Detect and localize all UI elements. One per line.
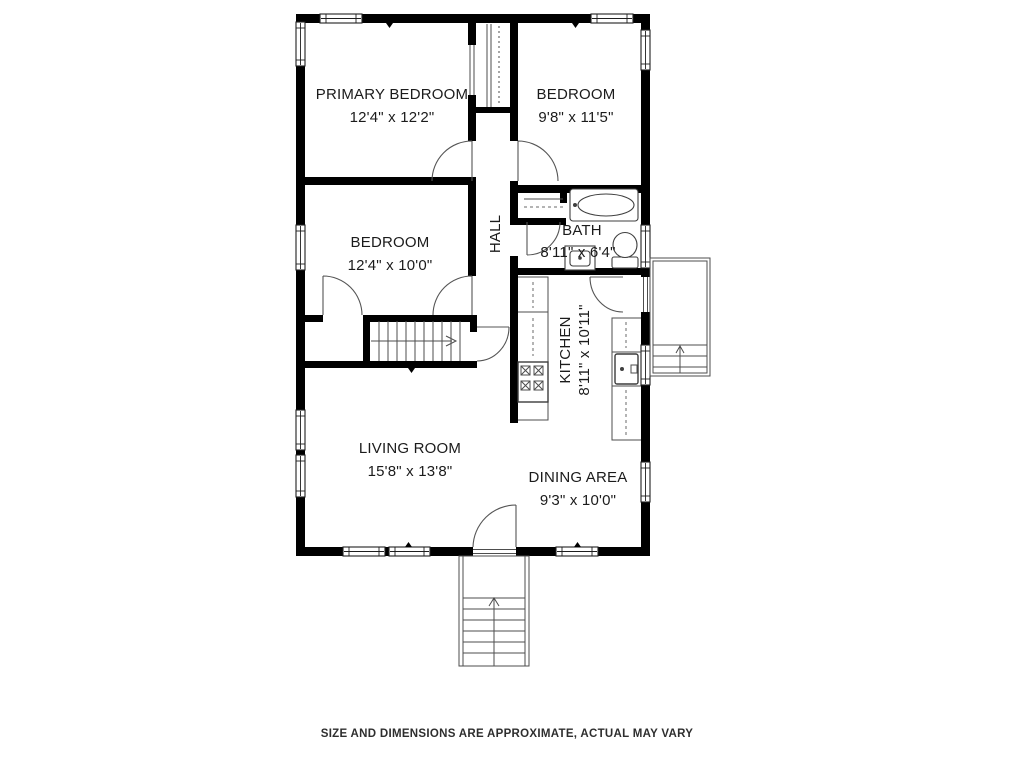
window-bottom-living-1 — [343, 547, 385, 556]
room-dims-kitchen: 8'11" x 10'11" — [576, 304, 593, 395]
side-door-threshold — [641, 277, 650, 312]
hall-pass-through — [468, 45, 476, 95]
room-label-bedroom3: BEDROOM — [351, 234, 430, 251]
room-label-kitchen: KITCHEN — [557, 316, 574, 383]
room-dims-dining-area: 9'3" x 10'0" — [540, 492, 616, 509]
room-label-bath: BATH — [562, 222, 602, 239]
bedroom3-closet-door-swing — [323, 276, 362, 315]
room-dims-bath: 8'11" x 6'4" — [540, 244, 615, 261]
window-left-primary-bedroom — [296, 22, 305, 66]
kitchen-counter-right — [612, 318, 641, 440]
window-top-bedroom — [591, 14, 633, 23]
basement-stairs-door-swing — [477, 327, 509, 361]
window-left-living-2 — [296, 455, 305, 497]
room-dims-primary-bedroom: 12'4" x 12'2" — [350, 109, 435, 126]
room-dims-living-room: 15'8" x 13'8" — [368, 463, 453, 480]
bedroom2-door-swing — [518, 141, 558, 181]
room-dims-bedroom2: 9'8" x 11'5" — [538, 109, 613, 126]
room-label-primary-bedroom: PRIMARY BEDROOM — [316, 86, 468, 103]
front-entry-stairs-icon — [459, 556, 529, 666]
primary-bedroom-door-swing — [432, 141, 472, 181]
side-porch-stairs-icon — [650, 258, 710, 376]
room-label-bedroom2: BEDROOM — [537, 86, 616, 103]
room-label-hall: HALL — [487, 215, 504, 253]
bedroom3-door-swing — [433, 276, 472, 315]
front-door-swing — [473, 505, 516, 547]
window-top-primary-bedroom — [320, 14, 362, 23]
kitchen-counter-left — [518, 277, 548, 420]
window-right-bath — [641, 225, 650, 268]
window-right-dining — [641, 462, 650, 502]
linen-closet-shelves — [524, 199, 563, 207]
kitchen-sink-icon — [615, 354, 638, 384]
toilet-icon — [612, 233, 638, 269]
room-label-living-room: LIVING ROOM — [359, 440, 461, 457]
window-right-bedroom — [641, 30, 650, 70]
window-left-living-1 — [296, 410, 305, 450]
disclaimer-text: SIZE AND DIMENSIONS ARE APPROXIMATE, ACT… — [321, 728, 694, 740]
room-label-dining-area: DINING AREA — [529, 469, 628, 486]
room-dims-bedroom3: 12'4" x 10'0" — [348, 257, 433, 274]
room-label-kitchen-group: KITCHEN 8'11" x 10'11" — [557, 304, 593, 395]
window-left-bedroom3 — [296, 225, 305, 270]
kitchen-side-door-swing — [590, 277, 623, 312]
bathtub-icon — [570, 189, 638, 221]
window-bottom-dining — [556, 547, 598, 556]
floor-plan: PRIMARY BEDROOM 12'4" x 12'2" BEDROOM 9'… — [0, 0, 1014, 758]
floor-plan-page: PRIMARY BEDROOM 12'4" x 12'2" BEDROOM 9'… — [0, 0, 1014, 758]
basement-stairs-icon — [371, 321, 460, 361]
front-door-threshold — [473, 547, 516, 556]
window-bottom-living-2 — [389, 547, 430, 556]
stove-icon — [518, 362, 548, 402]
window-right-kitchen — [641, 345, 650, 385]
attic-shaft-icon — [487, 24, 499, 107]
